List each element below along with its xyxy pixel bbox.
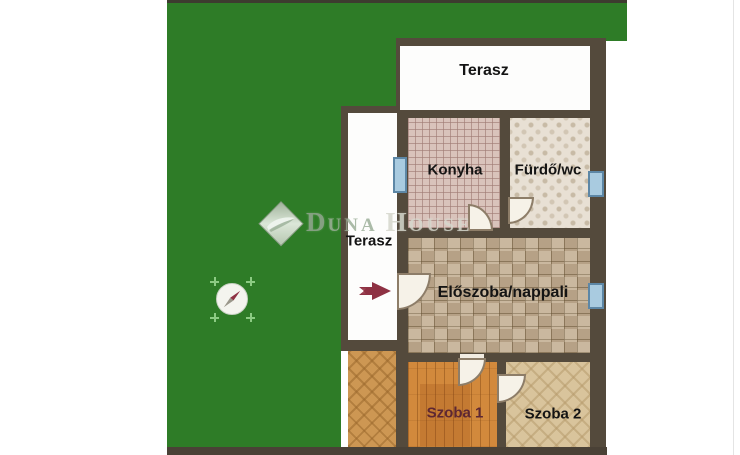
watermark-letter-d: D — [306, 207, 328, 238]
compass-circle — [216, 283, 248, 315]
duna-house-watermark-text: DUNAHOUSE — [306, 207, 472, 238]
entrance-arrow-icon — [359, 282, 391, 300]
compass-handle-ne — [246, 277, 255, 286]
room-label-szoba1: Szoba 1 — [427, 405, 484, 422]
floorplan-image: Terasz Konyha Fürdő/wc Terasz Előszoba/n… — [0, 0, 740, 455]
wood-terrace-bottom-left — [348, 351, 396, 447]
wall-below-eloszoba — [396, 353, 606, 362]
compass-needle-icon — [217, 284, 247, 314]
duna-house-diamond-logo-icon — [256, 200, 306, 248]
duna-house-watermark: DUNAHOUSE — [256, 200, 486, 250]
window-furdo-east — [588, 171, 604, 197]
image-edge-line — [733, 0, 734, 455]
bottom-border-strip — [167, 447, 607, 455]
wall-strip-terasz-bottom — [341, 340, 398, 351]
wall-strip-terasz-top — [341, 106, 398, 113]
room-label-konyha: Konyha — [427, 162, 482, 179]
watermark-ouse: OUSE — [409, 215, 473, 237]
watermark-letter-h: H — [386, 207, 409, 238]
wall-house-right — [590, 38, 606, 455]
room-label-furdo: Fürdő/wc — [515, 162, 582, 179]
compass-handle-se — [246, 313, 255, 322]
window-konyha-west — [393, 157, 407, 193]
compass-icon — [212, 279, 253, 320]
wall-terasz-top — [396, 38, 606, 46]
garden-lawn-upper-strip — [341, 0, 398, 110]
room-label-eloszoba: Előszoba/nappali — [438, 284, 569, 302]
window-eloszoba-east — [588, 283, 604, 309]
room-label-terasz-top: Terasz — [459, 62, 509, 80]
compass-handle-sw — [210, 313, 219, 322]
room-label-szoba2: Szoba 2 — [525, 406, 582, 423]
watermark-una: UNA — [328, 215, 378, 237]
garden-border-top — [167, 0, 627, 3]
